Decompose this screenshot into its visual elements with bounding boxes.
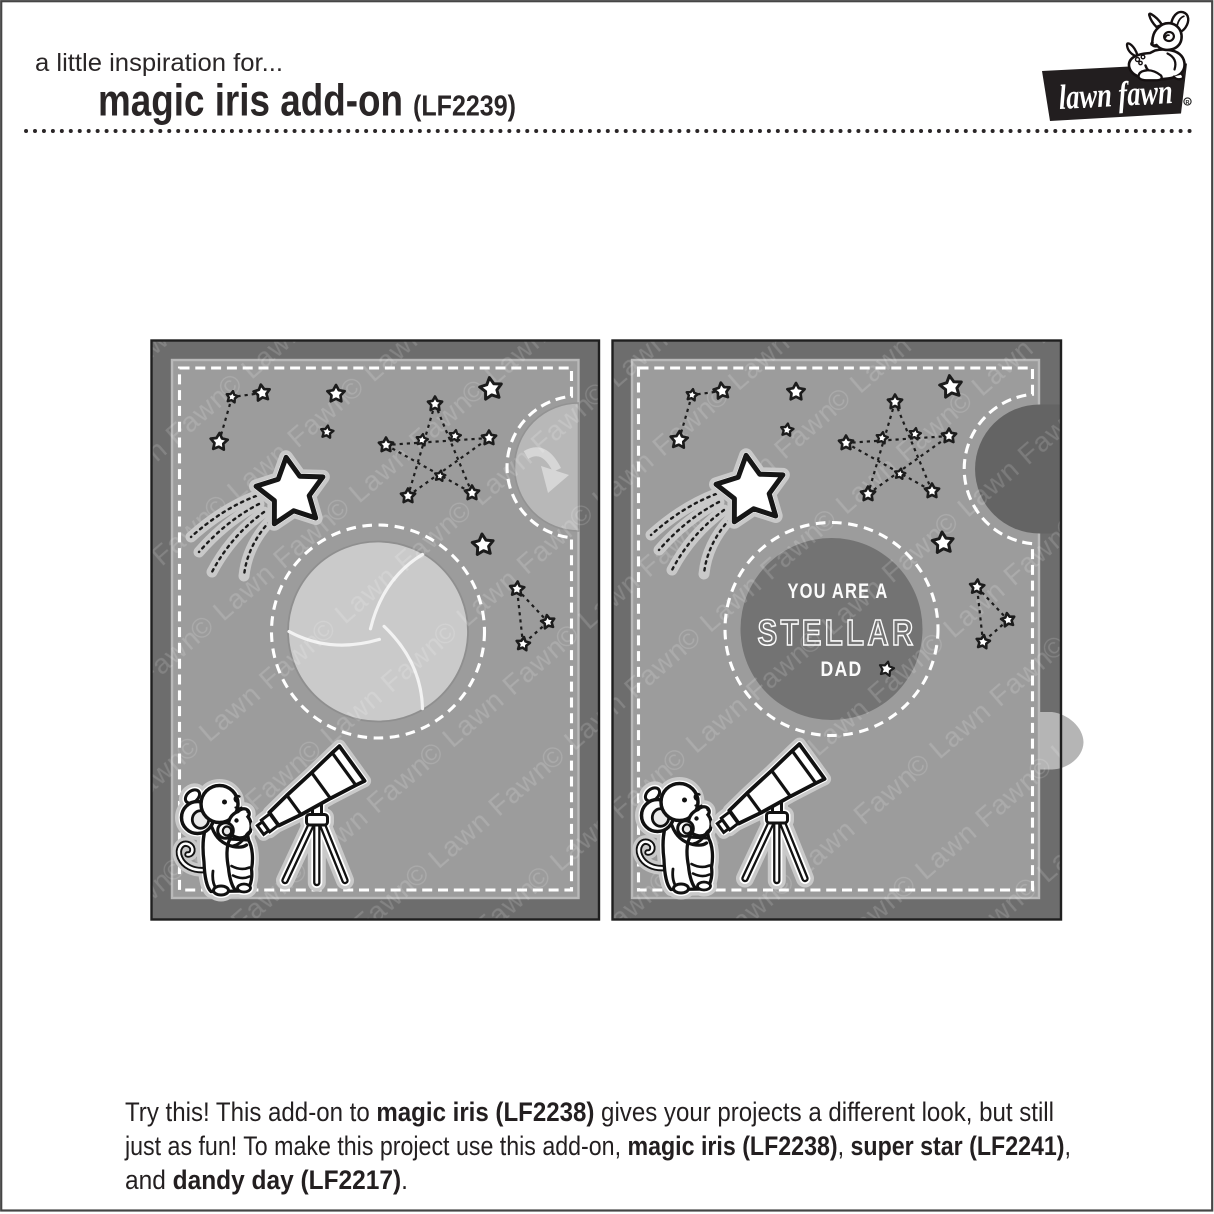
- svg-text:and dandy day (LF2217).: and dandy day (LF2217).: [125, 1165, 408, 1195]
- svg-text:just as fun! To make this proj: just as fun! To make this project use th…: [124, 1131, 1071, 1161]
- svg-text:STELLAR: STELLAR: [758, 612, 917, 653]
- svg-text:magic iris add-on: magic iris add-on: [98, 77, 403, 126]
- svg-text:(LF2239): (LF2239): [413, 91, 516, 123]
- svg-text:R: R: [1186, 100, 1190, 106]
- svg-text:DAD: DAD: [821, 658, 863, 681]
- svg-text:YOU ARE A: YOU ARE A: [788, 580, 889, 603]
- svg-text:a little inspiration for...: a little inspiration for...: [35, 49, 283, 77]
- svg-text:Try this! This add-on to magic: Try this! This add-on to magic iris (LF2…: [125, 1097, 1054, 1127]
